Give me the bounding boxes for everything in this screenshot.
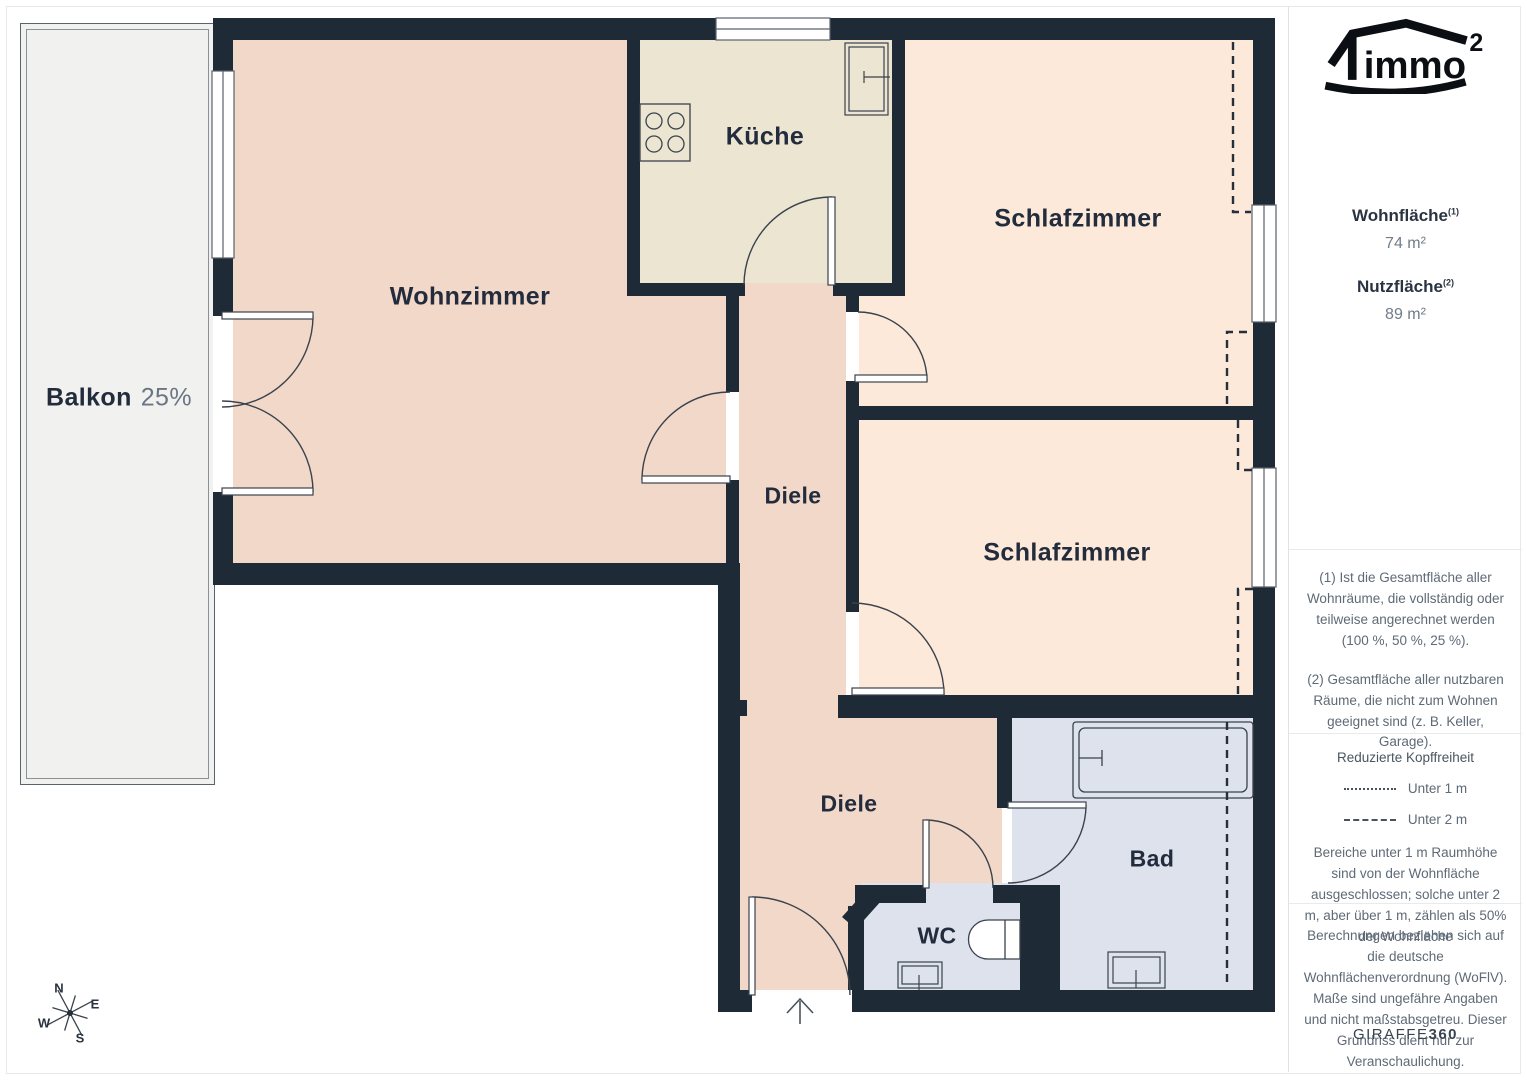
room-label-bad: Bad [1130,846,1175,873]
wall-segment [213,18,1275,40]
footnote-2: (2) Gesamtfläche aller nutzbaren Räume, … [1303,670,1508,754]
wall-segment [892,40,905,296]
info-sidebar: immo 2 Wohnfläche(1) 74 m² Nutzfläche(2)… [1288,6,1522,1072]
room-kueche [640,40,892,283]
svg-text:immo: immo [1363,44,1465,87]
room-label-schlafzimmer-top: Schlafzimmer [994,205,1161,234]
wall-segment [855,885,926,903]
metric-nutzflaeche: Nutzfläche(2) 89 m² [1289,277,1522,324]
room-label-schlafzimmer-mid: Schlafzimmer [983,539,1150,568]
wall-segment [213,563,740,585]
room-label-diele-lower: Diele [821,791,878,818]
room-label-wohnzimmer: Wohnzimmer [390,283,551,312]
sidebar-divider [1289,549,1522,550]
wall-segment [833,283,905,296]
compass-icon [35,978,105,1048]
wall-segment [726,480,739,563]
giraffe360-brand: GIRAFFE360 [1289,1026,1522,1043]
room-label-diele-upper: Diele [765,483,822,510]
area-metrics: Wohnfläche(1) 74 m² Nutzfläche(2) 89 m² [1289,206,1522,324]
room-label-kueche: Küche [726,123,804,152]
wall-segment [846,283,859,312]
wall-segment [848,906,864,990]
legend-under-1m: Unter 1 m [1303,781,1508,796]
legend-under-2m: Unter 2 m [1303,812,1508,827]
balkon-percentage: 25% [141,384,192,412]
room-label-wc: WC [917,923,956,950]
wall-segment [627,40,640,296]
compass-south-label: S [76,1031,85,1046]
wall-segment [846,406,1253,420]
sidebar-divider [1289,903,1522,904]
dashed-line-icon [1344,819,1396,821]
room-label-balkon: Balkon25% [46,384,192,413]
compass-west-label: W [38,1016,50,1031]
metric-wohnflaeche: Wohnfläche(1) 74 m² [1289,206,1522,253]
wall-segment [1020,885,1060,992]
wall-segment [838,695,1253,718]
disclaimer: Berechnungen beziehen sich auf die deuts… [1303,926,1508,1072]
dotted-line-icon [1344,788,1396,790]
wall-segment [726,283,739,392]
footnotes: (1) Ist die Gesamtfläche aller Wohnräume… [1303,568,1508,771]
immo-logo: immo 2 [1310,14,1502,94]
footnote-1: (1) Ist die Gesamtfläche aller Wohnräume… [1303,568,1508,652]
compass-north-label: N [54,981,63,996]
wall-segment [737,700,747,716]
sidebar-divider [1289,733,1522,734]
wall-segment [213,18,233,585]
metric-nutzflaeche-value: 89 m² [1289,306,1522,324]
wall-segment [718,990,1275,1012]
wall-segment [1253,18,1275,1012]
compass-east-label: E [91,997,100,1012]
wall-segment [718,563,740,1012]
metric-wohnflaeche-value: 74 m² [1289,235,1522,253]
svg-text:2: 2 [1469,29,1483,57]
headroom-legend: Reduzierte Kopffreiheit Unter 1 m Unter … [1303,750,1508,948]
wall-segment [997,718,1012,808]
headroom-title: Reduzierte Kopffreiheit [1303,750,1508,765]
